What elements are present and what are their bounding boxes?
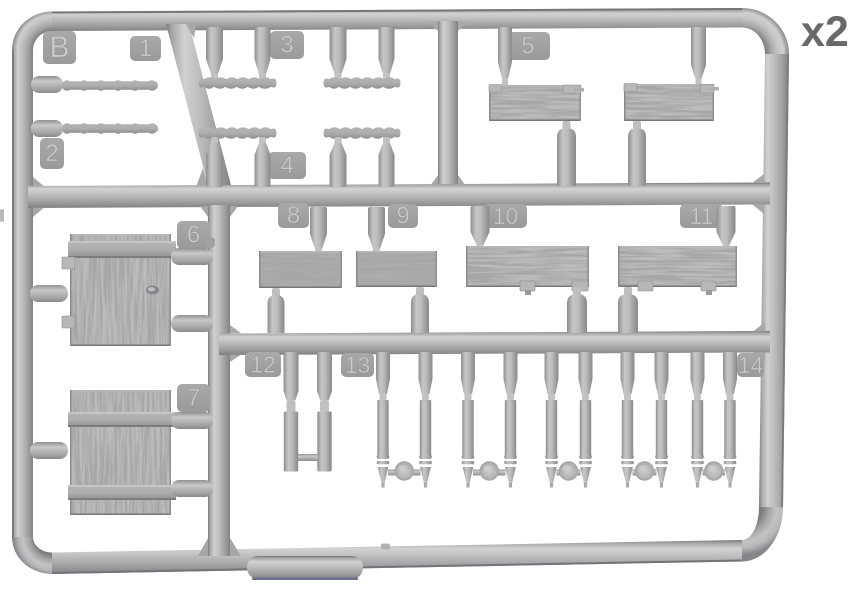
svg-text:14: 14	[738, 352, 764, 378]
svg-text:x2: x2	[801, 8, 849, 56]
svg-text:1: 1	[139, 35, 152, 62]
svg-text:4: 4	[280, 152, 293, 179]
svg-text:13: 13	[345, 352, 371, 378]
svg-text:3: 3	[280, 32, 293, 59]
svg-text:6: 6	[187, 222, 200, 249]
svg-text:2: 2	[45, 140, 58, 167]
svg-text:12: 12	[250, 352, 276, 378]
svg-text:B: B	[49, 31, 69, 64]
svg-text:8: 8	[287, 202, 300, 229]
svg-text:9: 9	[396, 203, 409, 230]
svg-text:5: 5	[521, 33, 534, 60]
svg-text:10: 10	[493, 203, 519, 229]
svg-text:11: 11	[690, 203, 714, 229]
svg-text:7: 7	[187, 385, 200, 412]
